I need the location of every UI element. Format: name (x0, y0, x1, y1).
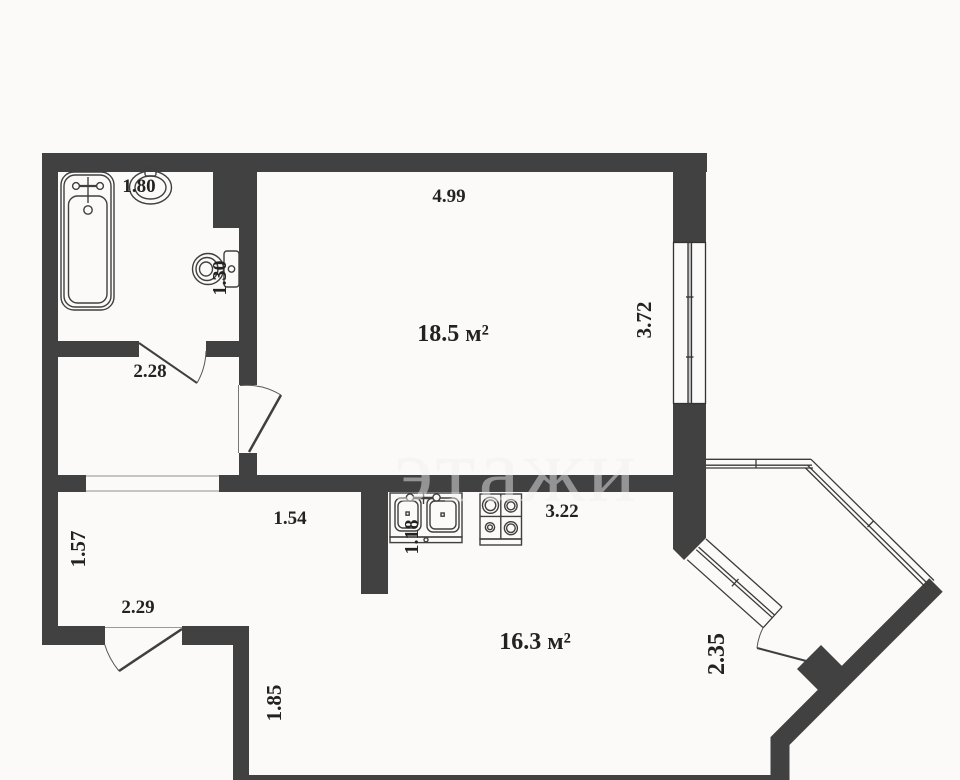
svg-text:3.22: 3.22 (545, 501, 578, 522)
svg-text:16.3 м²: 16.3 м² (499, 629, 571, 655)
svg-text:3.72: 3.72 (632, 302, 656, 339)
svg-text:1.54: 1.54 (273, 508, 307, 529)
svg-text:1.80: 1.80 (122, 176, 155, 197)
svg-text:1.30: 1.30 (209, 261, 231, 296)
svg-text:2.35: 2.35 (704, 633, 730, 675)
svg-text:этажи: этажи (394, 419, 638, 521)
svg-text:2.28: 2.28 (133, 361, 166, 382)
svg-text:1.18: 1.18 (401, 520, 423, 555)
svg-text:1.57: 1.57 (66, 531, 90, 568)
svg-text:4.99: 4.99 (432, 186, 465, 207)
svg-text:18.5 м²: 18.5 м² (417, 321, 489, 347)
svg-text:1.85: 1.85 (262, 685, 286, 722)
svg-text:2.29: 2.29 (121, 597, 154, 618)
